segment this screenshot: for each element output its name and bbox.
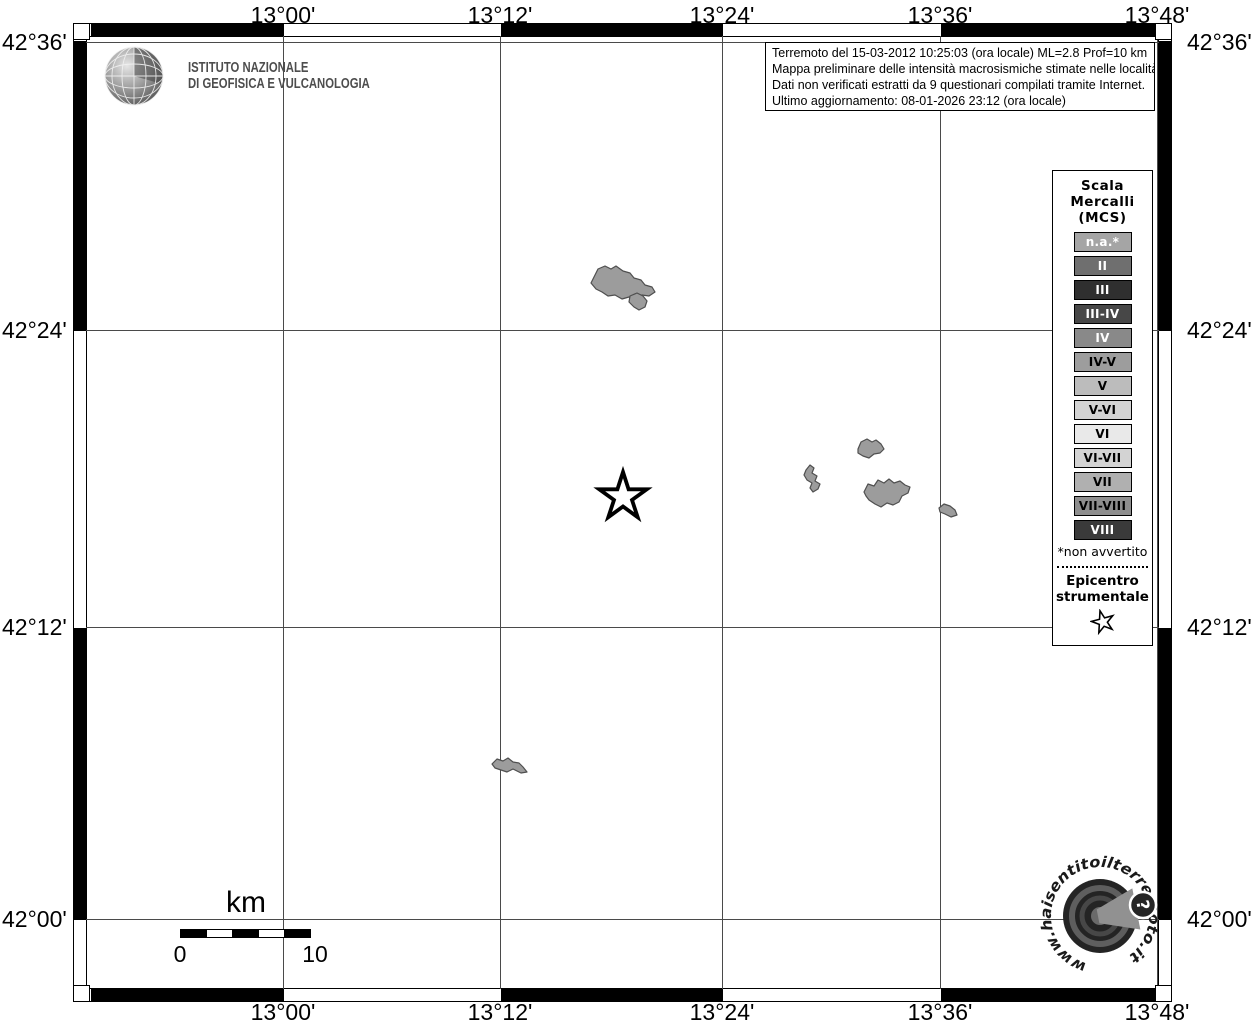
- info-line-data-source: Dati non verificati estratti da 9 questi…: [772, 77, 1148, 93]
- urban-area-polygon: [492, 758, 527, 773]
- question-mark-icon: ?: [1130, 892, 1156, 918]
- scale-bar-segment: [284, 929, 311, 938]
- axis-label-lon: 13°12': [468, 999, 533, 1024]
- gridline-vertical: [500, 36, 501, 989]
- axis-label-lon: 13°36': [908, 999, 973, 1024]
- axis-label-lat: 42°00': [1187, 906, 1252, 933]
- axis-label-lon: 13°12': [468, 2, 533, 29]
- legend-intensity-iv: IV: [1074, 328, 1132, 348]
- earthquake-info-box: Terremoto del 15-03-2012 10:25:03 (ora l…: [765, 42, 1155, 111]
- axis-label-lon: 13°24': [690, 999, 755, 1024]
- legend-footnote: *non avvertito: [1053, 544, 1152, 559]
- ingv-logo: ISTITUTO NAZIONALE DI GEOFISICA E VULCAN…: [98, 45, 421, 107]
- legend-title: Scala Mercalli (MCS): [1053, 178, 1152, 226]
- axis-label-lat: 42°12': [1187, 614, 1252, 641]
- legend-intensity-viii: VIII: [1074, 520, 1132, 540]
- ingv-logo-line2: DI GEOFISICA E VULCANOLOGIA: [188, 76, 370, 92]
- ingv-globe-icon: [98, 45, 174, 107]
- frame-corner: [73, 985, 90, 1002]
- map-frame-left: [73, 23, 87, 1002]
- gridline-horizontal: [86, 330, 1159, 331]
- frame-corner: [73, 23, 90, 40]
- scale-bar-segment: [206, 929, 233, 938]
- legend-title-line: Mercalli: [1053, 194, 1152, 210]
- star-outline-icon: [1090, 609, 1116, 635]
- scale-bar: [180, 929, 315, 938]
- legend-intensity-v: V: [1074, 376, 1132, 396]
- scale-bar-start: 0: [168, 941, 192, 968]
- info-line-updated: Ultimo aggiornamento: 08-01-2026 23:12 (…: [772, 93, 1148, 109]
- axis-label-lon: 13°24': [690, 2, 755, 29]
- legend-intensity-iii-iv: III-IV: [1074, 304, 1132, 324]
- macroseismic-map-page: { "map": { "top_axis_labels": ["13°00'",…: [0, 0, 1255, 1024]
- epicenter-star: [599, 472, 647, 517]
- axis-label-lon: 13°00': [251, 999, 316, 1024]
- gridline-vertical: [283, 36, 284, 989]
- urban-area-polygon: [858, 439, 884, 458]
- legend-title-line: Scala: [1053, 178, 1152, 194]
- axis-label-lat: 42°36': [1187, 29, 1252, 56]
- legend-intensity-iii: III: [1074, 280, 1132, 300]
- gridline-vertical: [722, 36, 723, 989]
- legend-intensity-ii: II: [1074, 256, 1132, 276]
- axis-label-lon: 13°00': [251, 2, 316, 29]
- map-frame-top: [73, 23, 1172, 37]
- legend-intensity-v-vi: V-VI: [1074, 400, 1132, 420]
- urban-area-polygon: [629, 293, 647, 310]
- urban-area-polygon: [591, 266, 655, 299]
- axis-label-lat: 42°24': [2, 317, 67, 344]
- gridline-vertical: [1157, 36, 1158, 989]
- legend-epicenter-line: Epicentro: [1053, 573, 1152, 589]
- legend-epicenter-line: strumentale: [1053, 589, 1152, 605]
- legend-epicenter-title: Epicentro strumentale: [1053, 573, 1152, 605]
- scale-bar-segment: [180, 929, 207, 938]
- scale-bar-segment: [258, 929, 285, 938]
- legend-intensity-iv-v: IV-V: [1074, 352, 1132, 372]
- urban-area-polygon: [804, 465, 820, 492]
- frame-corner: [1155, 23, 1172, 40]
- legend-intensity-vi: VI: [1074, 424, 1132, 444]
- map-frame-bottom: [73, 988, 1172, 1002]
- scale-bar-unit: km: [200, 886, 292, 920]
- axis-label-lat: 42°36': [2, 29, 67, 56]
- axis-label-lat: 42°24': [1187, 317, 1252, 344]
- legend-title-line: (MCS): [1053, 210, 1152, 226]
- mercalli-scale-legend: Scala Mercalli (MCS) n.a.* II III III-IV…: [1052, 170, 1153, 646]
- ingv-logo-text: ISTITUTO NAZIONALE DI GEOFISICA E VULCAN…: [188, 60, 370, 92]
- legend-intensity-vi-vii: VI-VII: [1074, 448, 1132, 468]
- axis-label-lat: 42°00': [2, 906, 67, 933]
- urban-area-polygon: [939, 504, 957, 517]
- urban-area-polygon: [864, 479, 910, 507]
- gridline-horizontal: [86, 627, 1159, 628]
- axis-label-lat: 42°12': [2, 614, 67, 641]
- legend-intensity-vii-viii: VII-VIII: [1074, 496, 1132, 516]
- legend-divider: [1057, 566, 1148, 568]
- info-line-map-desc: Mappa preliminare delle intensità macros…: [772, 61, 1148, 77]
- axis-label-lon: 13°48': [1125, 999, 1190, 1024]
- legend-intensity-na: n.a.*: [1074, 232, 1132, 252]
- gridline-vertical: [940, 36, 941, 989]
- ingv-logo-line1: ISTITUTO NAZIONALE: [188, 60, 370, 76]
- scale-bar-end: 10: [296, 941, 334, 968]
- legend-swatches: n.a.* II III III-IV IV IV-V V V-VI VI VI…: [1053, 232, 1152, 540]
- scale-bar-segment: [232, 929, 259, 938]
- legend-epicenter-symbol: [1053, 609, 1152, 639]
- axis-label-lon: 13°36': [908, 2, 973, 29]
- speaker-target-icon: [1063, 879, 1140, 953]
- legend-intensity-vii: VII: [1074, 472, 1132, 492]
- haisentito-watermark-logo: www.haisentitoilterremoto.it ?: [1035, 850, 1167, 989]
- info-line-event: Terremoto del 15-03-2012 10:25:03 (ora l…: [772, 45, 1148, 61]
